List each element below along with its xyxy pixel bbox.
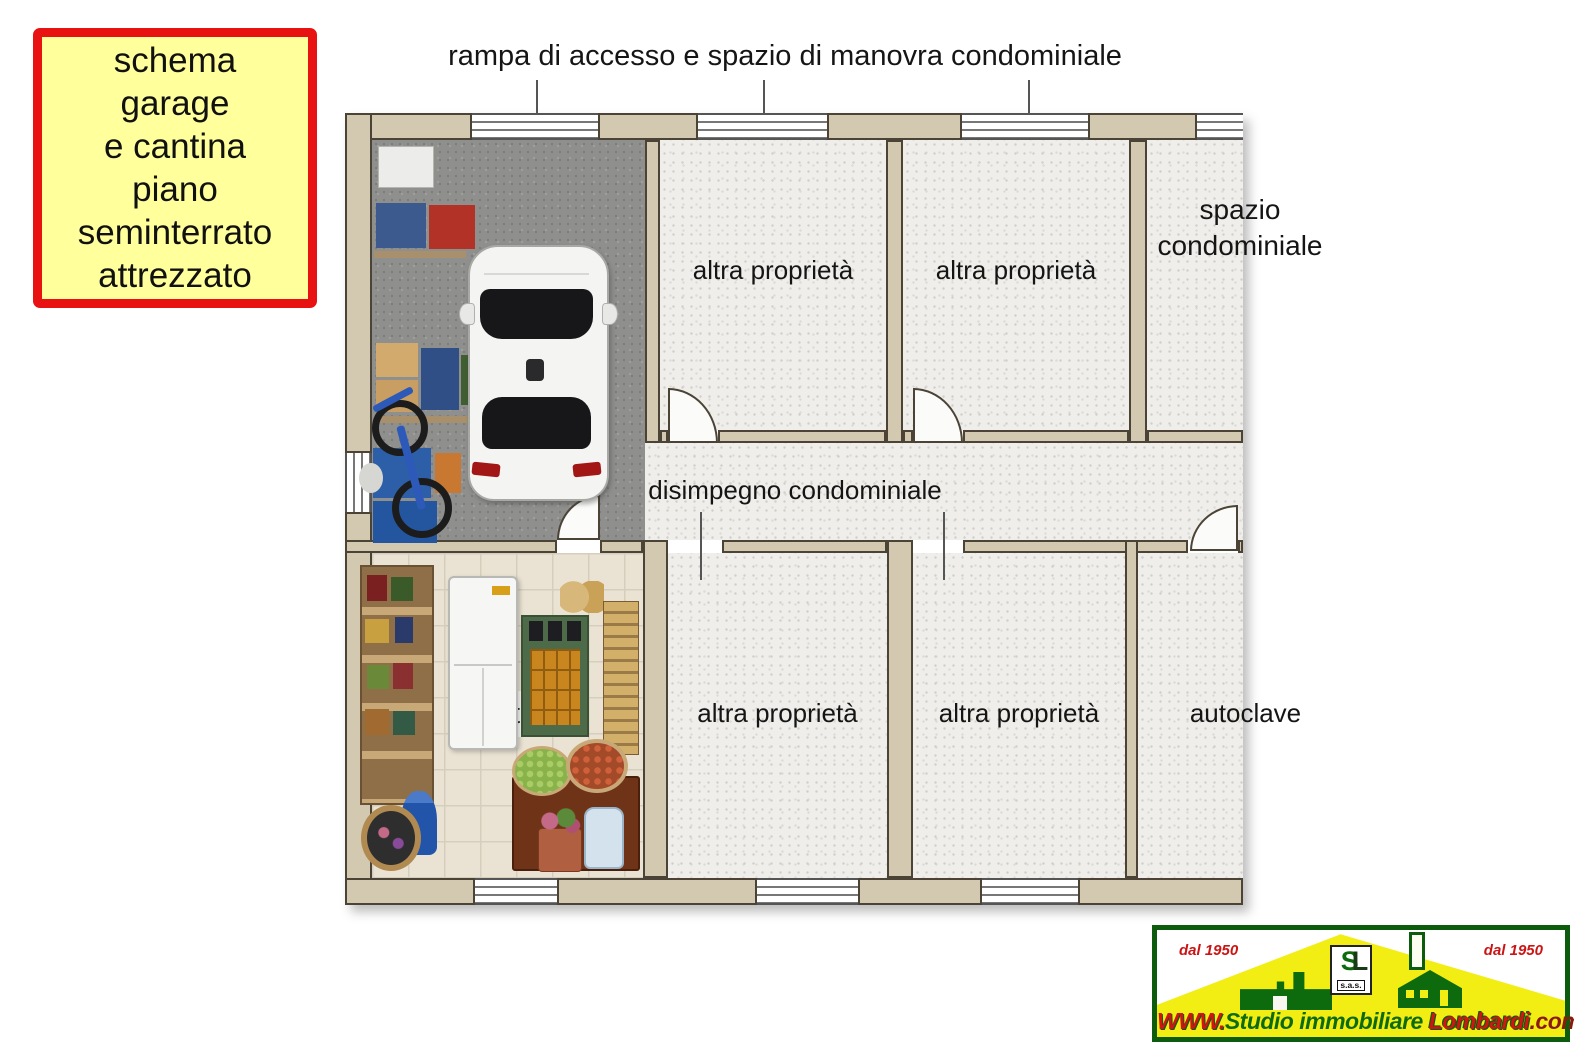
leader-line bbox=[943, 512, 945, 580]
storage-box bbox=[421, 348, 459, 410]
fridge-divider bbox=[482, 668, 484, 746]
fridge-divider bbox=[454, 664, 512, 666]
logo-chimney bbox=[1409, 932, 1425, 970]
storage-box bbox=[376, 343, 418, 377]
wall-cantina-divider bbox=[643, 540, 668, 878]
title-box: schema garage e cantina piano seminterra… bbox=[33, 28, 317, 308]
floorplan: altra proprietà altra proprietà spazio c… bbox=[345, 113, 1243, 905]
car-hood-line bbox=[484, 273, 589, 275]
autoclave-label: autoclave bbox=[1138, 698, 1353, 729]
top-room-1-label: altra proprietà bbox=[660, 255, 886, 286]
wall-segment bbox=[1088, 113, 1197, 140]
title-line: seminterrato bbox=[78, 211, 273, 254]
car-mirror bbox=[602, 303, 618, 325]
bottom-room-1-label: altra proprietà bbox=[668, 698, 887, 729]
wall-segment bbox=[722, 540, 887, 553]
preserve-jars bbox=[530, 649, 580, 725]
wall-segment bbox=[557, 878, 757, 905]
monogram: SL bbox=[1341, 946, 1362, 976]
dark-jar bbox=[567, 621, 581, 641]
dark-jar bbox=[529, 621, 543, 641]
window bbox=[757, 878, 858, 905]
spazio-label: spazio condominiale bbox=[1140, 192, 1340, 264]
shelf-jars bbox=[391, 577, 413, 601]
jars bbox=[560, 581, 604, 613]
since-1950-left: dal 1950 bbox=[1179, 942, 1238, 959]
title-line: piano bbox=[132, 168, 218, 211]
storage-box bbox=[429, 205, 475, 249]
website-lombardi: Lombardi bbox=[1429, 1008, 1530, 1034]
sl-monogram-box: SL s.a.s. bbox=[1330, 945, 1372, 995]
fruit-basket bbox=[566, 739, 628, 793]
dark-jar bbox=[548, 621, 562, 641]
garage-gate bbox=[472, 113, 598, 140]
wall-segment bbox=[718, 430, 886, 443]
title-line: attrezzato bbox=[98, 254, 252, 297]
wall-segment bbox=[887, 540, 913, 878]
ramp-access-label: rampa di accesso e spazio di manovra con… bbox=[402, 40, 1168, 73]
shelf-jars bbox=[367, 575, 387, 601]
wall-segment bbox=[963, 430, 1129, 443]
car-sunroof bbox=[526, 359, 544, 381]
shelf-jars bbox=[367, 665, 389, 689]
website-text: WWW.Studio immobiliare Lombardi.com bbox=[1157, 1008, 1565, 1035]
plant-leaves bbox=[536, 805, 582, 837]
house-window bbox=[1420, 990, 1428, 998]
title-line: schema bbox=[114, 39, 237, 82]
fridge bbox=[448, 576, 518, 750]
wall-segment bbox=[903, 430, 913, 443]
wall-segment bbox=[1147, 430, 1243, 443]
plant-basket bbox=[361, 805, 421, 871]
spazio-label-line1: spazio bbox=[1140, 192, 1340, 228]
shelf-jars bbox=[393, 711, 415, 735]
website-com: .com bbox=[1530, 1008, 1574, 1034]
car bbox=[468, 245, 609, 501]
water-jug bbox=[584, 807, 624, 869]
garage-gate bbox=[1197, 113, 1243, 140]
shelf-jars bbox=[395, 617, 413, 643]
shelf-jars bbox=[393, 663, 413, 689]
car-rear-window bbox=[482, 397, 591, 449]
shelf-jars bbox=[365, 709, 389, 735]
house-window bbox=[1406, 990, 1414, 998]
shelf-board bbox=[374, 251, 466, 258]
house-door bbox=[1440, 990, 1448, 1006]
wall-segment bbox=[1238, 540, 1243, 553]
window bbox=[982, 878, 1078, 905]
garage-gate bbox=[698, 113, 827, 140]
wall-segment bbox=[1078, 878, 1243, 905]
spazio-floor bbox=[1147, 140, 1243, 430]
wall-garage-divider bbox=[645, 140, 660, 443]
wall-segment bbox=[598, 113, 698, 140]
website-www: WWW. bbox=[1157, 1008, 1225, 1034]
screenshot-canvas: schema garage e cantina piano seminterra… bbox=[0, 0, 1574, 1050]
spazio-label-line2: condominiale bbox=[1140, 228, 1340, 264]
title-line: garage bbox=[121, 82, 230, 125]
storage-box bbox=[376, 203, 426, 248]
wall-segment bbox=[858, 878, 982, 905]
website-studio: Studio immobiliare bbox=[1225, 1008, 1429, 1034]
car-taillight bbox=[471, 462, 500, 478]
since-1950-right: dal 1950 bbox=[1484, 942, 1543, 959]
top-room-2-label: altra proprietà bbox=[903, 255, 1129, 286]
window bbox=[475, 878, 557, 905]
plastic-bag bbox=[359, 463, 383, 493]
wall-segment bbox=[600, 540, 643, 553]
green-rack bbox=[521, 615, 589, 737]
leader-line bbox=[700, 512, 702, 580]
wall-segment bbox=[886, 140, 903, 443]
fridge-label bbox=[492, 586, 510, 595]
title-line: e cantina bbox=[104, 125, 246, 168]
wall-segment bbox=[345, 113, 372, 453]
agency-logo: dal 1950 dal 1950 SL s.a.s. WWW.Studio i… bbox=[1152, 925, 1570, 1042]
shelf-jars bbox=[365, 619, 389, 643]
wall-segment bbox=[1129, 140, 1147, 443]
sas-label: s.a.s. bbox=[1337, 980, 1364, 991]
car-taillight bbox=[572, 462, 601, 478]
garage-gate bbox=[962, 113, 1088, 140]
car-windshield bbox=[480, 289, 593, 339]
wall-segment bbox=[660, 430, 668, 443]
wood-planks bbox=[603, 601, 639, 755]
storage-box bbox=[378, 146, 434, 188]
grapes-basket bbox=[512, 746, 572, 796]
wall-segment bbox=[345, 878, 475, 905]
wall-segment bbox=[963, 540, 1188, 553]
bottom-room-2-label: altra proprietà bbox=[913, 698, 1125, 729]
car-mirror bbox=[459, 303, 475, 325]
corridor-label: disimpegno condominiale bbox=[645, 475, 945, 506]
wall-segment bbox=[1125, 540, 1138, 878]
wall-segment bbox=[827, 113, 962, 140]
